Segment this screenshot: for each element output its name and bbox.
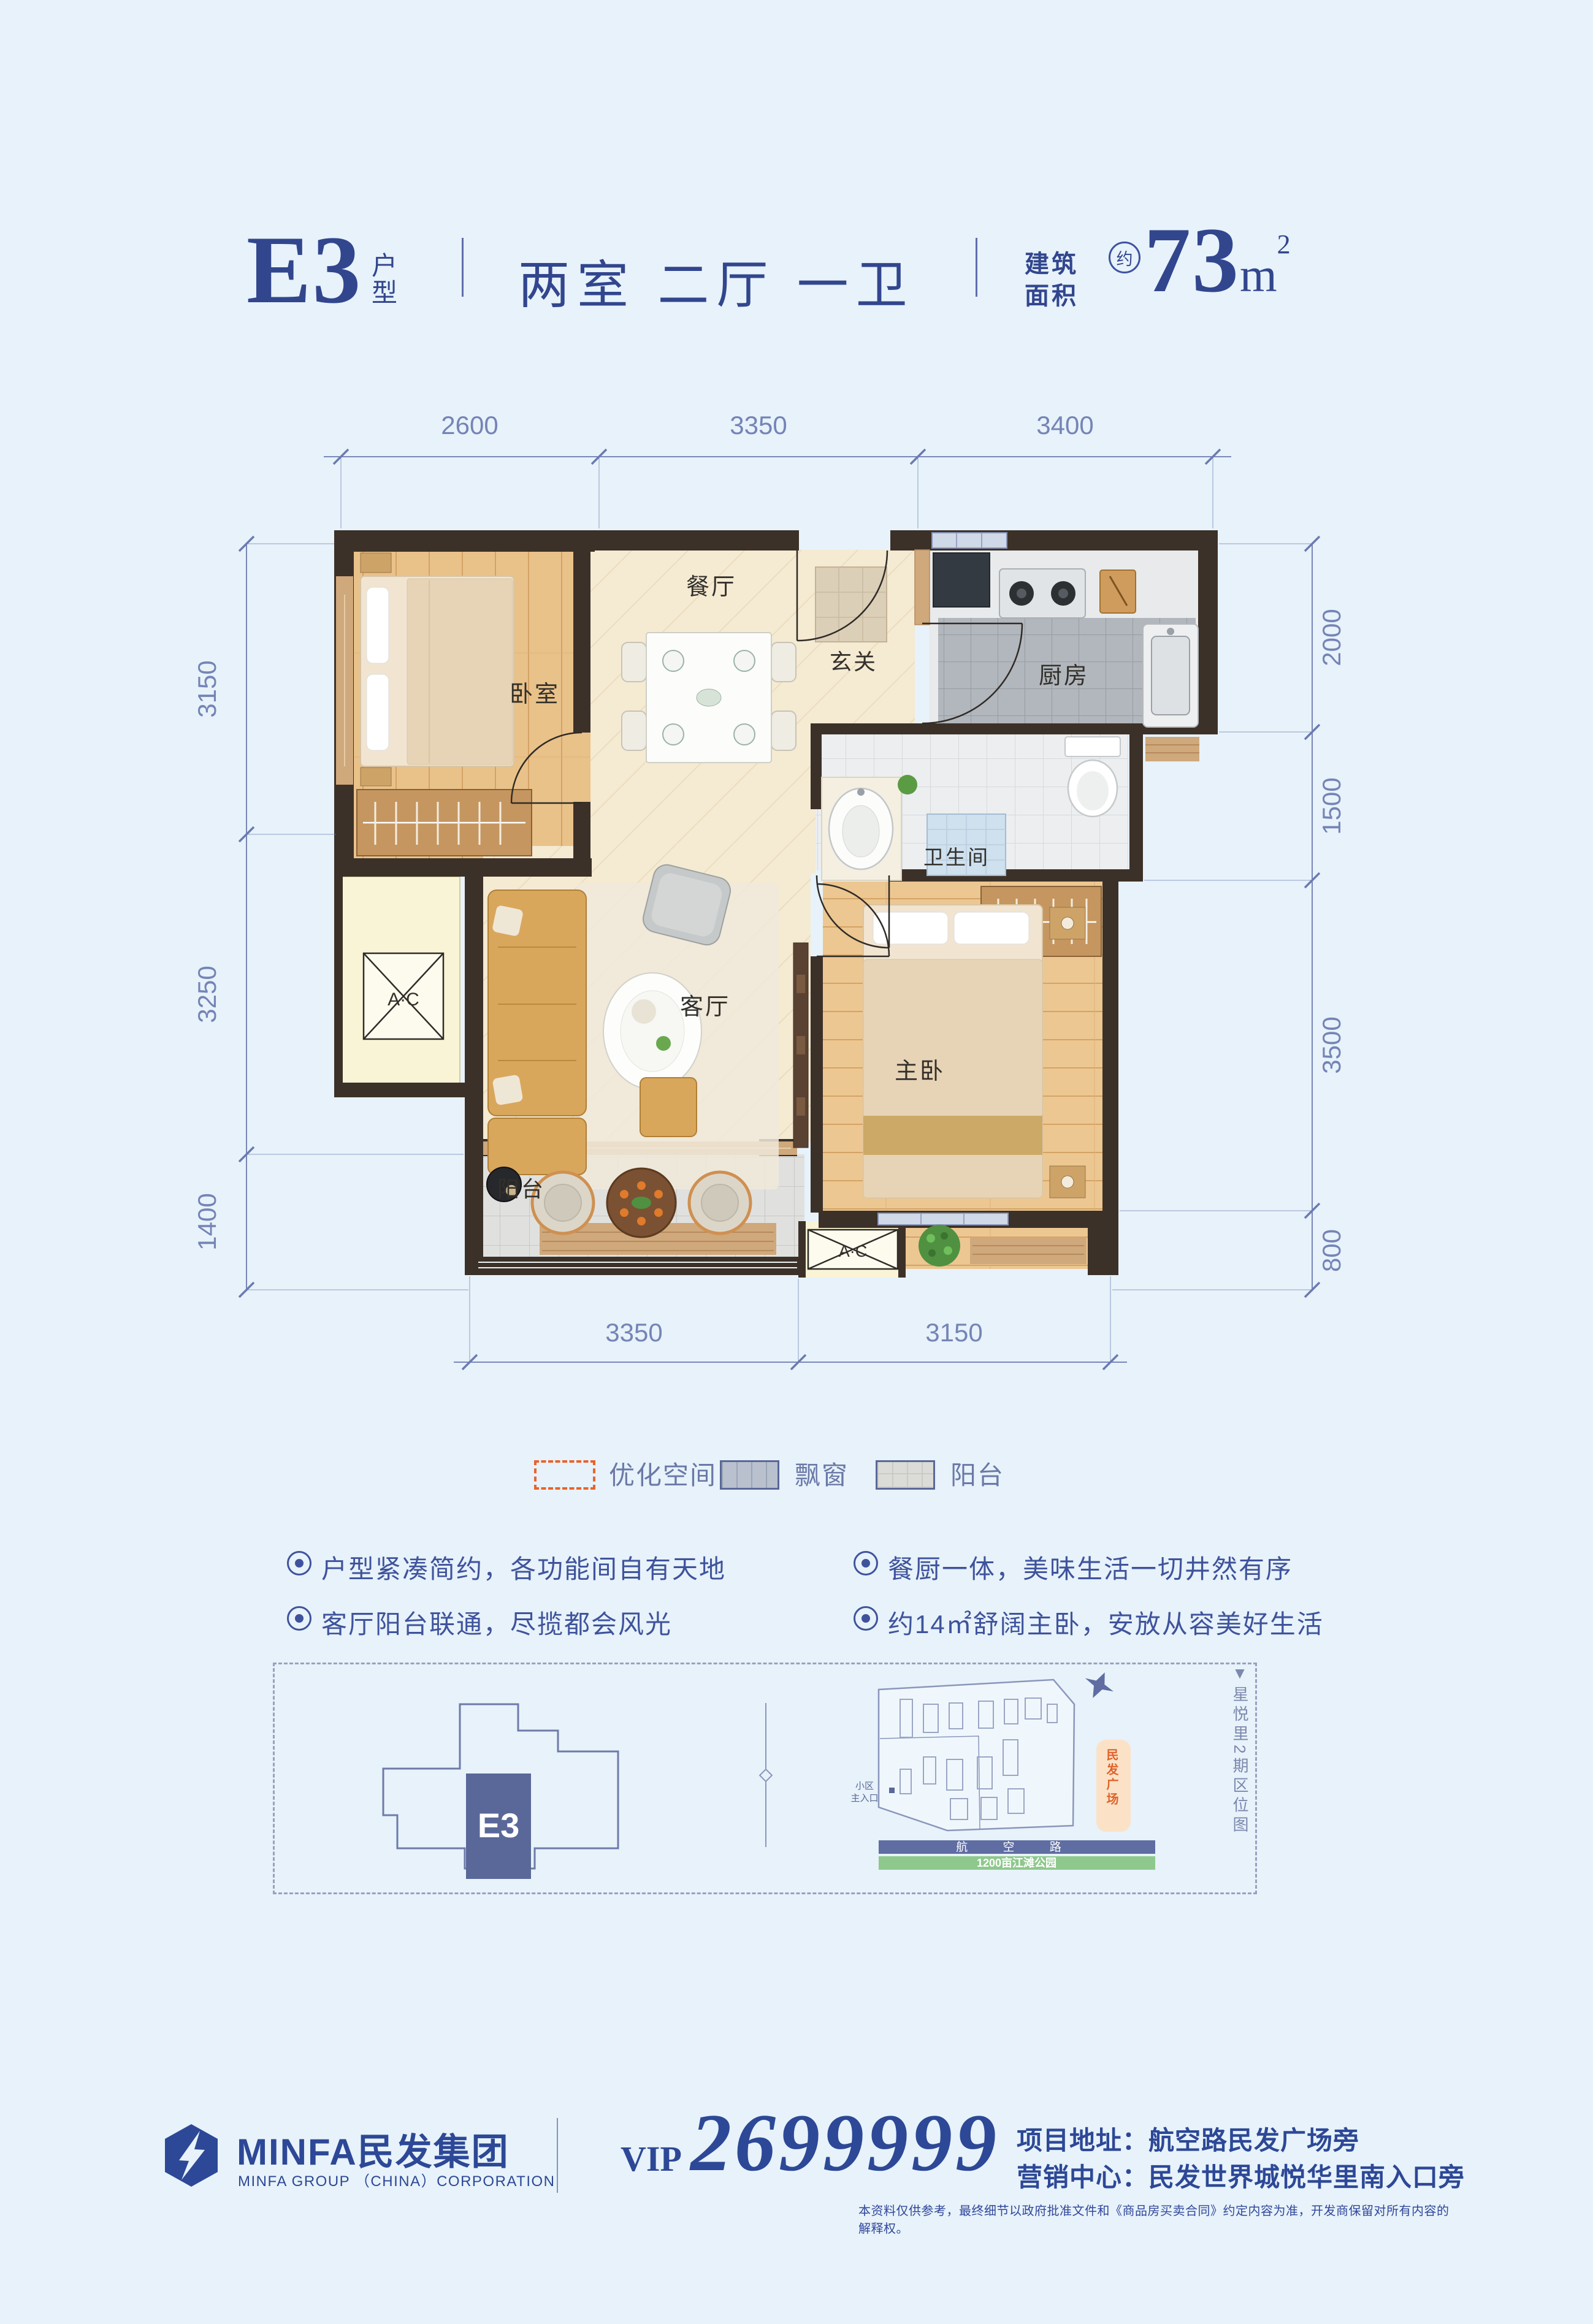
- footer-divider: [557, 2118, 558, 2193]
- ac-label-left: A·C: [388, 989, 419, 1010]
- building-outline-diagram: E3: [374, 1695, 662, 1879]
- sofa-icon: [488, 890, 586, 1175]
- legend-swatch-optimized: [534, 1460, 595, 1490]
- location-caption: ▼星悦里2期区位图: [1229, 1664, 1251, 1835]
- bullet-icon: [854, 1606, 878, 1631]
- unit-code: E3: [246, 222, 362, 319]
- bedroom-wardrobe-icon: [357, 790, 532, 856]
- living-room-furniture: [487, 862, 808, 1202]
- kitchen-cabinet-icon: [933, 553, 990, 607]
- ottoman-icon: [640, 1078, 697, 1137]
- room-label-master: 主卧: [895, 1059, 945, 1084]
- kitchen-window-icon: [932, 533, 1007, 548]
- room-label-bedroom: 卧室: [510, 682, 560, 707]
- floor-plan: 卧室 餐厅 玄关 厨房 卫生间 客厅 主卧 阳台 A·C A·C: [0, 392, 1593, 1434]
- ac-label-bottom: A·C: [839, 1242, 868, 1260]
- legend-swatch-baywindow: [720, 1460, 779, 1490]
- plaza-label: 民发广场: [1102, 1748, 1120, 1840]
- brand-name: MINFA民发集团: [237, 2122, 510, 2176]
- dim-left-2: 3250: [193, 966, 221, 1023]
- bullet-icon: [287, 1551, 311, 1575]
- dim-top-1: 2600: [441, 411, 498, 440]
- dining-table-icon: [622, 633, 796, 763]
- room-label-kitchen: 厨房: [1039, 663, 1089, 689]
- area-value: 73 m 2: [1144, 213, 1291, 307]
- room-label-living: 客厅: [680, 994, 730, 1020]
- feature-2: 客厅阳台联通，尽揽都会风光: [321, 1604, 672, 1641]
- approx-mark: 约: [1109, 242, 1140, 273]
- sales-center-address: 营销中心：民发世界城悦华里南入口旁: [1017, 2157, 1465, 2194]
- legend-swatch-balcony: [876, 1460, 935, 1490]
- road-label: 航 空 路: [956, 1840, 1077, 1854]
- room-label-bathroom: 卫生间: [923, 846, 990, 869]
- dim-right-3: 3500: [1317, 1016, 1346, 1073]
- plant-small-icon: [898, 775, 917, 794]
- legend-label-baywindow: 飘窗: [795, 1460, 849, 1490]
- room-label-balcony: 阳台: [497, 1176, 545, 1202]
- legend-label-balcony: 阳台: [950, 1460, 1004, 1490]
- site-map: 小区 主入口 航 空 路 1200亩江滩公园: [797, 1667, 1177, 1879]
- dim-right-4: 800: [1317, 1229, 1346, 1272]
- compass-icon: [1079, 1667, 1120, 1705]
- master-window-icon: [878, 1213, 1008, 1225]
- dim-bottom-1: 3350: [605, 1318, 662, 1347]
- dim-bottom-2: 3150: [925, 1318, 982, 1347]
- entrance-label-1: 小区: [855, 1781, 874, 1791]
- room-label-entry: 玄关: [830, 649, 877, 674]
- area-label-2: 面积: [1025, 276, 1079, 311]
- poster-page: E3 户型 两室 二厅 一卫 建筑 面积 约 73 m 2: [0, 0, 1593, 2324]
- feature-1: 户型紧凑简约，各功能间自有天地: [321, 1549, 726, 1586]
- park-label: 1200亩江滩公园: [977, 1856, 1056, 1869]
- unit-highlight-label: E3: [478, 1806, 520, 1845]
- vip-label: VIP: [621, 2138, 682, 2179]
- dim-top-2: 3350: [730, 411, 787, 440]
- project-address: 项目地址：航空路民发广场旁: [1017, 2120, 1359, 2157]
- plant-icon: [919, 1225, 960, 1267]
- dim-left-3: 1400: [193, 1193, 221, 1250]
- feature-3: 餐厨一体，美味生活一切井然有序: [888, 1549, 1293, 1586]
- header-divider-1: [462, 238, 464, 297]
- area-number: 73: [1144, 213, 1240, 307]
- unit-type-label: 户型: [372, 253, 400, 307]
- area-unit: m: [1240, 251, 1277, 299]
- bullet-icon: [287, 1606, 311, 1631]
- feature-4: 约14㎡舒阔主卧，安放从容美好生活: [888, 1604, 1324, 1641]
- dim-right-1: 2000: [1317, 609, 1346, 666]
- site-boundary: [879, 1680, 1074, 1831]
- area-exponent: 2: [1277, 229, 1291, 260]
- disclaimer-text: 本资料仅供参考，最终细节以政府批准文件和《商品房买卖合同》约定内容为准，开发商保…: [858, 2201, 1459, 2236]
- toilet-icon: [1065, 737, 1120, 817]
- vip-phone-number: 2699999: [690, 2101, 999, 2184]
- dim-left-1: 3150: [193, 660, 221, 717]
- dim-top-3: 3400: [1036, 411, 1093, 440]
- room-label-dining: 餐厅: [686, 574, 736, 600]
- entrance-marker: [889, 1788, 895, 1793]
- bullet-icon: [854, 1551, 878, 1575]
- header-divider-2: [976, 238, 977, 297]
- entrance-label-2: 主入口: [850, 1793, 878, 1804]
- layout-text: 两室 二厅 一卫: [518, 244, 915, 318]
- bedroom-bed-icon: [361, 553, 514, 786]
- dim-right-2: 1500: [1317, 777, 1346, 834]
- area-label-1: 建筑: [1025, 244, 1079, 280]
- legend-label-optimized: 优化空间: [609, 1460, 717, 1490]
- brand-subtitle: MINFA GROUP （CHINA）CORPORATION: [238, 2169, 556, 2190]
- entry-mat: [816, 567, 887, 642]
- minfa-logo-icon: [161, 2122, 222, 2189]
